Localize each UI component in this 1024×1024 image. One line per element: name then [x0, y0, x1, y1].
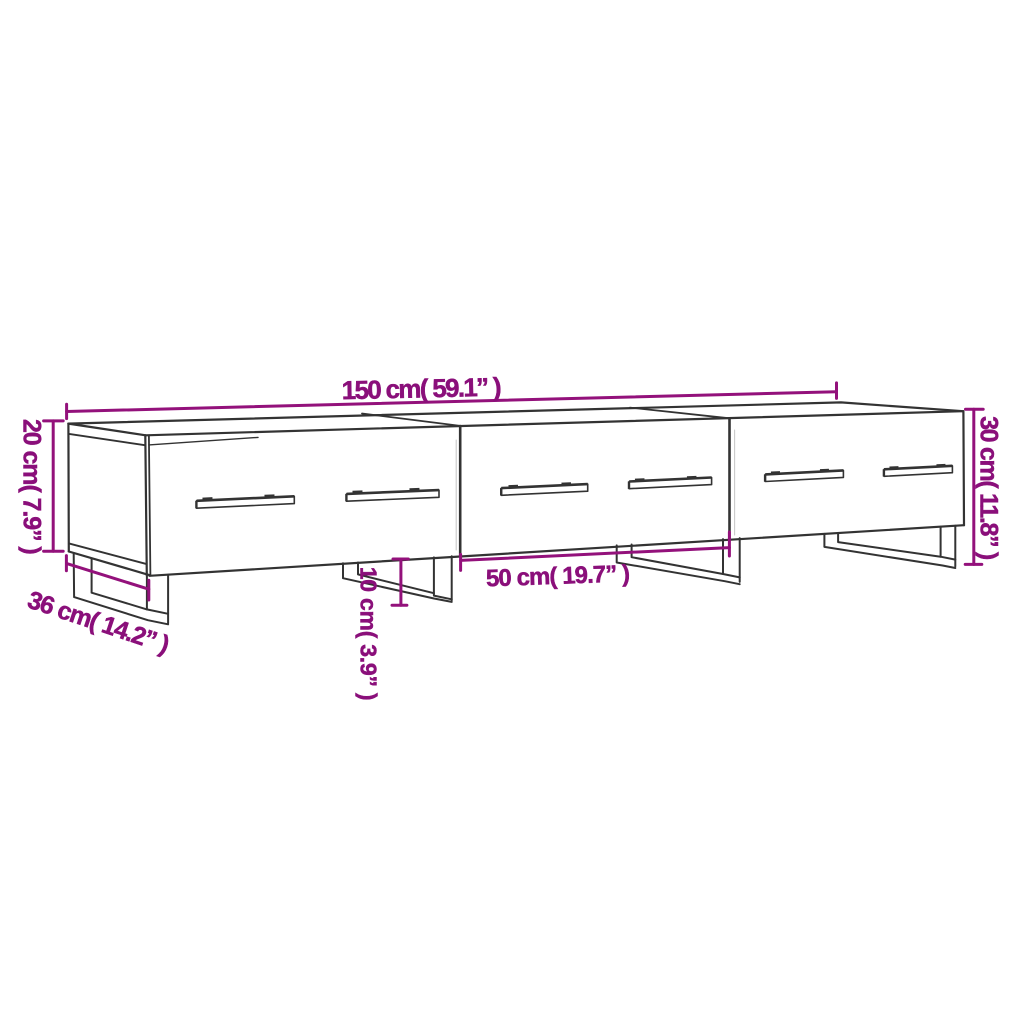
svg-text:20 cm( 7.9” ): 20 cm( 7.9” )	[17, 419, 45, 554]
svg-text:50 cm( 19.7” ): 50 cm( 19.7” )	[486, 560, 630, 592]
svg-text:30 cm( 11.8” ): 30 cm( 11.8” )	[974, 416, 1002, 560]
svg-text:150 cm( 59.1” ): 150 cm( 59.1” )	[341, 372, 501, 406]
svg-text:10 cm( 3.9” ): 10 cm( 3.9” )	[356, 567, 382, 701]
